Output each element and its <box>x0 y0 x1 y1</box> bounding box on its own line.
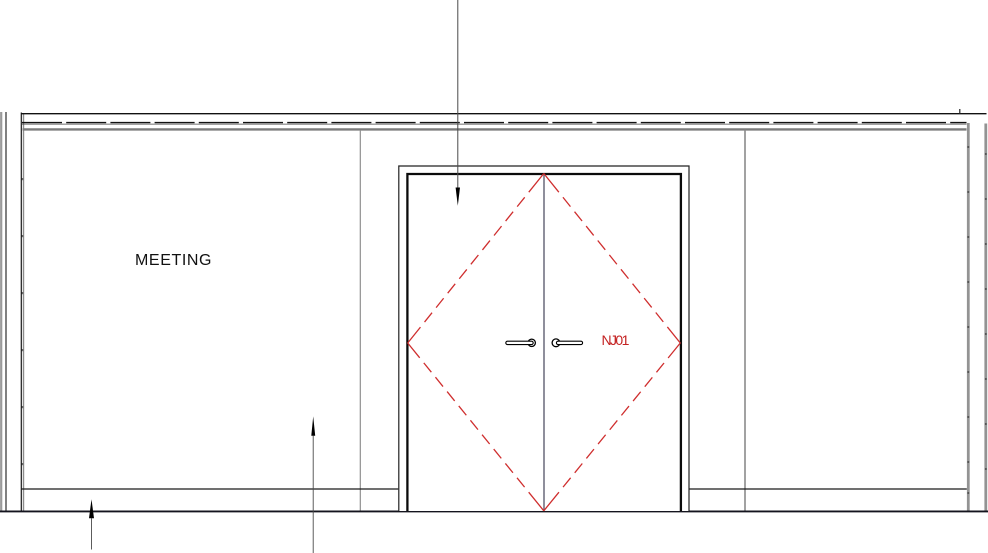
svg-text:MEETING: MEETING <box>135 252 212 269</box>
svg-text:NJ01: NJ01 <box>602 332 630 348</box>
